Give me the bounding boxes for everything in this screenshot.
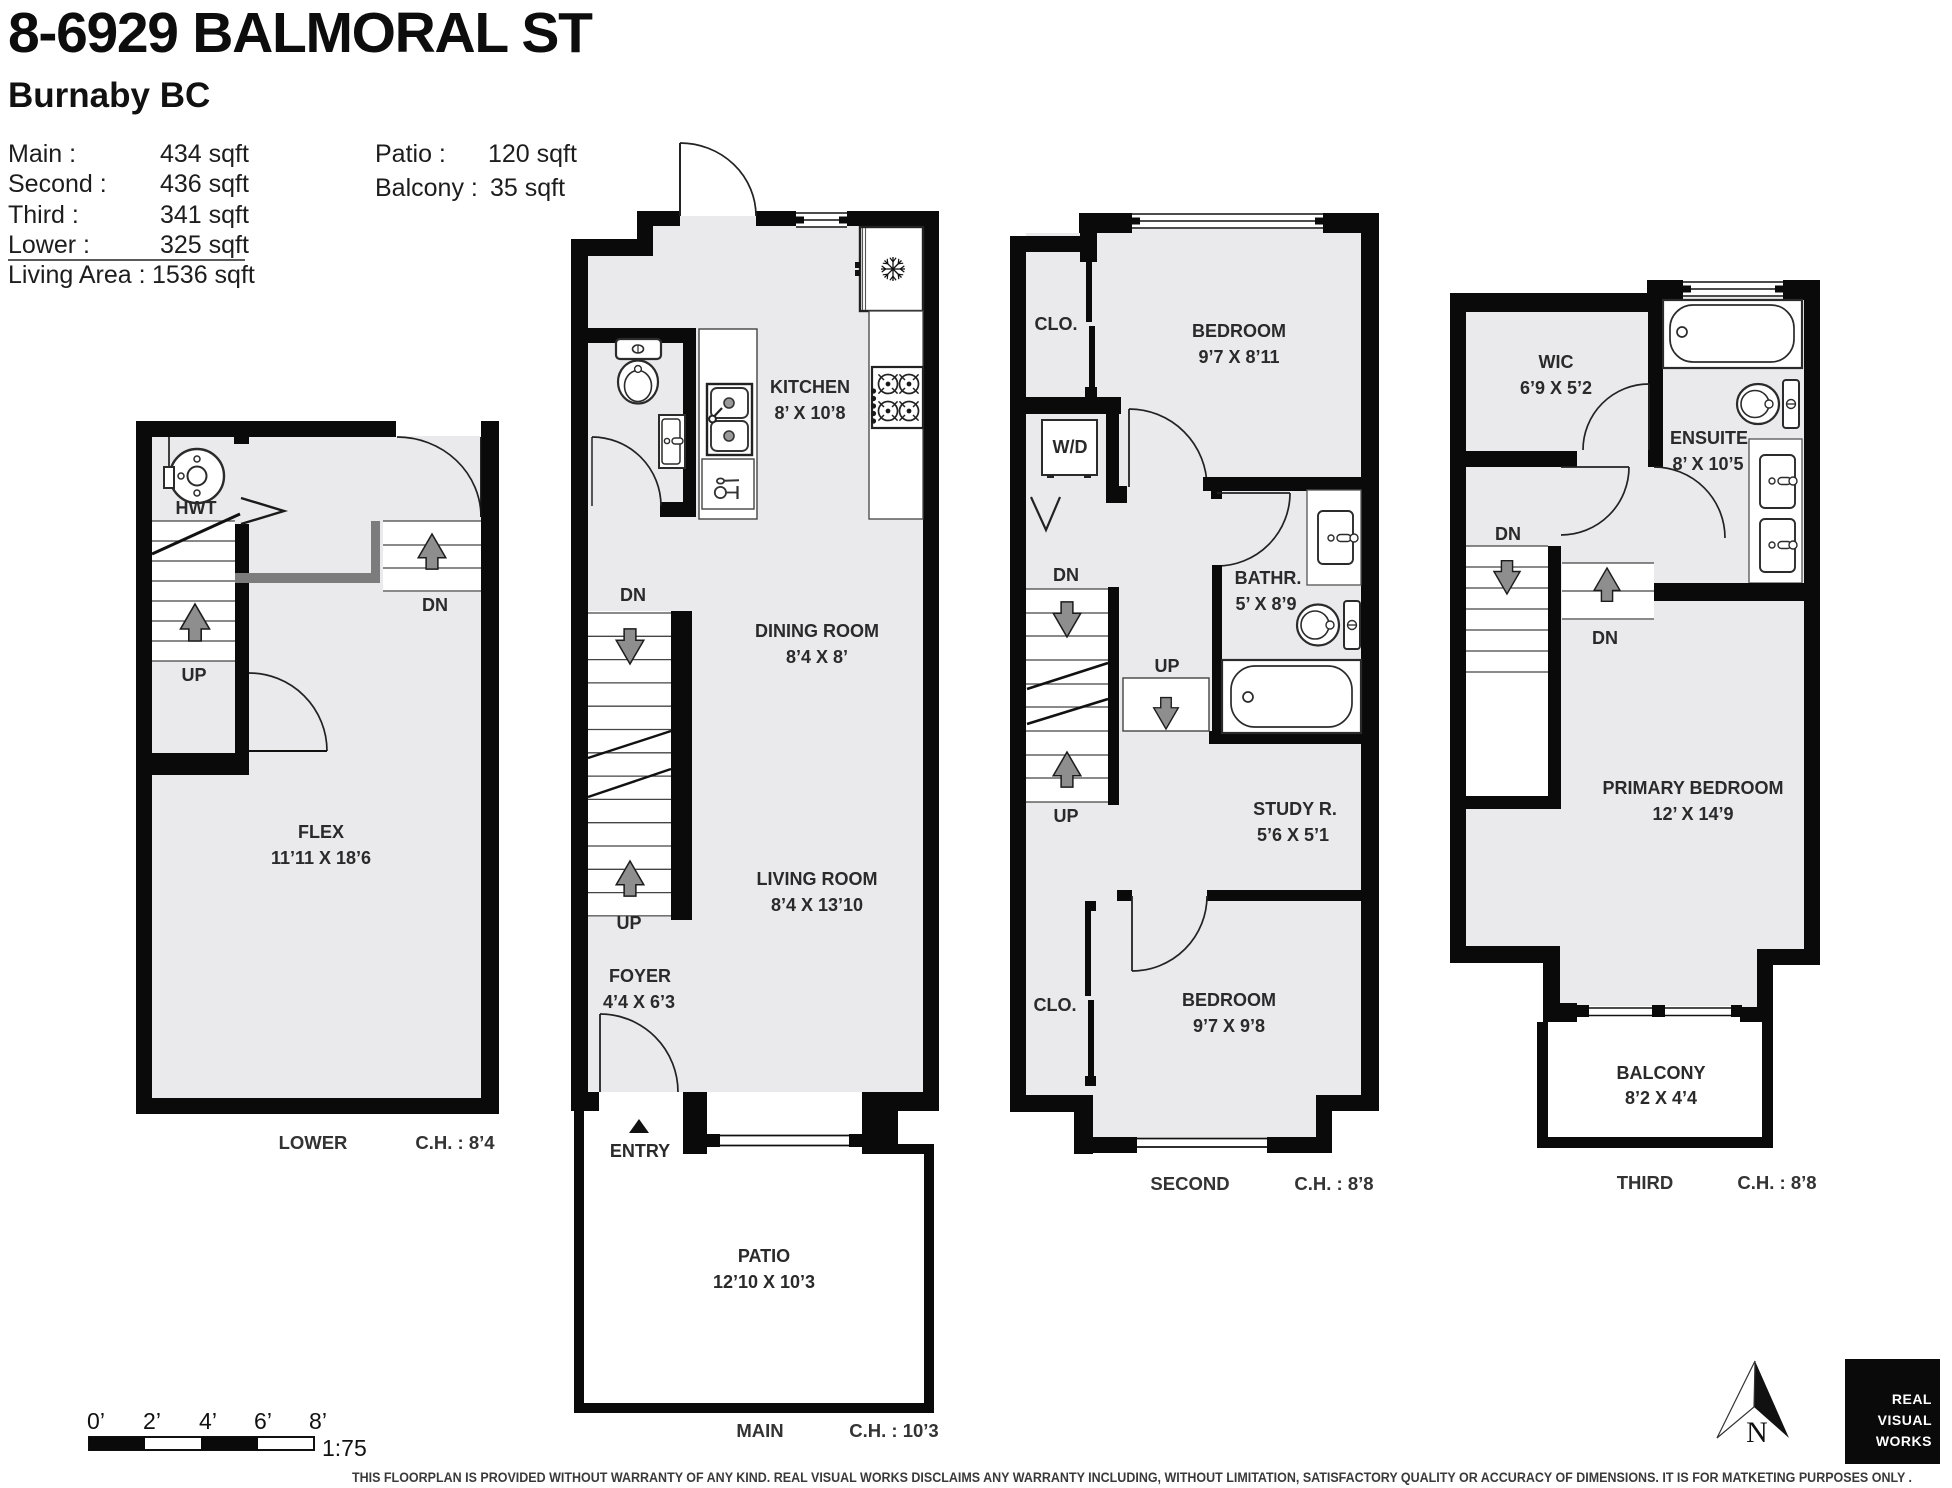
svg-text:UP: UP bbox=[616, 913, 641, 933]
svg-text:C.H. : 8’4: C.H. : 8’4 bbox=[415, 1132, 495, 1153]
svg-text:REAL: REAL bbox=[1892, 1391, 1932, 1407]
svg-text:DN: DN bbox=[422, 595, 448, 615]
svg-text:LIVING ROOM: LIVING ROOM bbox=[757, 869, 878, 889]
svg-text:DN: DN bbox=[1592, 628, 1618, 648]
svg-text:8’ X 10’8: 8’ X 10’8 bbox=[774, 403, 845, 423]
svg-text:8’ X 10’5: 8’ X 10’5 bbox=[1672, 454, 1743, 474]
svg-text:C.H. : 10’3: C.H. : 10’3 bbox=[849, 1420, 938, 1441]
svg-text:436 sqft: 436 sqft bbox=[160, 170, 249, 198]
svg-text:8’4 X 8’: 8’4 X 8’ bbox=[786, 647, 848, 667]
svg-text:8’: 8’ bbox=[309, 1408, 327, 1434]
svg-text:SECOND: SECOND bbox=[1150, 1173, 1229, 1194]
svg-text:LOWER: LOWER bbox=[279, 1132, 348, 1153]
svg-text:Balcony :: Balcony : bbox=[375, 174, 478, 202]
svg-text:12’ X 14’9: 12’ X 14’9 bbox=[1652, 804, 1733, 824]
svg-text:1:75: 1:75 bbox=[322, 1435, 367, 1461]
svg-text:DN: DN bbox=[1495, 524, 1521, 544]
svg-text:5’6 X 5’1: 5’6 X 5’1 bbox=[1257, 825, 1329, 845]
svg-text:Main :: Main : bbox=[8, 140, 76, 168]
svg-text:WORKS: WORKS bbox=[1876, 1433, 1932, 1449]
svg-text:Burnaby BC: Burnaby BC bbox=[8, 76, 210, 115]
svg-text:325 sqft: 325 sqft bbox=[160, 231, 249, 259]
svg-text:1536 sqft: 1536 sqft bbox=[152, 261, 255, 289]
svg-text:4’: 4’ bbox=[199, 1408, 217, 1434]
svg-text:CLO.: CLO. bbox=[1035, 314, 1078, 334]
svg-text:9’7 X 8’11: 9’7 X 8’11 bbox=[1198, 347, 1279, 367]
svg-text:CLO.: CLO. bbox=[1034, 995, 1077, 1015]
svg-text:9’7 X 9’8: 9’7 X 9’8 bbox=[1193, 1016, 1265, 1036]
svg-text:KITCHEN: KITCHEN bbox=[770, 377, 850, 397]
svg-text:UP: UP bbox=[181, 665, 206, 685]
svg-text:HWT: HWT bbox=[176, 498, 217, 518]
svg-text:Lower :: Lower : bbox=[8, 231, 90, 259]
svg-text:12’10 X 10’3: 12’10 X 10’3 bbox=[713, 1272, 815, 1292]
svg-text:FOYER: FOYER bbox=[609, 966, 671, 986]
svg-text:ENTRY: ENTRY bbox=[610, 1141, 670, 1161]
svg-text:5’ X 8’9: 5’ X 8’9 bbox=[1235, 594, 1296, 614]
svg-text:PRIMARY BEDROOM: PRIMARY BEDROOM bbox=[1602, 778, 1783, 798]
svg-text:BEDROOM: BEDROOM bbox=[1192, 321, 1286, 341]
svg-text:C.H. : 8’8: C.H. : 8’8 bbox=[1294, 1173, 1373, 1194]
svg-text:W/D: W/D bbox=[1053, 437, 1088, 457]
svg-text:WIC: WIC bbox=[1539, 352, 1574, 372]
svg-text:Third :: Third : bbox=[8, 201, 79, 229]
svg-text:Living Area :: Living Area : bbox=[8, 261, 146, 289]
svg-text:434 sqft: 434 sqft bbox=[160, 140, 249, 168]
svg-text:DN: DN bbox=[1053, 565, 1079, 585]
svg-text:341 sqft: 341 sqft bbox=[160, 201, 249, 229]
svg-text:UP: UP bbox=[1053, 806, 1078, 826]
svg-text:2’: 2’ bbox=[143, 1408, 161, 1434]
svg-text:MAIN: MAIN bbox=[736, 1420, 783, 1441]
svg-text:4’4 X 6’3: 4’4 X 6’3 bbox=[603, 992, 675, 1012]
svg-text:6’9 X 5’2: 6’9 X 5’2 bbox=[1520, 378, 1592, 398]
svg-text:THIRD: THIRD bbox=[1617, 1172, 1674, 1193]
svg-text:DN: DN bbox=[620, 585, 646, 605]
svg-text:8-6929 BALMORAL ST: 8-6929 BALMORAL ST bbox=[8, 1, 593, 65]
svg-text:C.H. : 8’8: C.H. : 8’8 bbox=[1737, 1172, 1816, 1193]
svg-text:35 sqft: 35 sqft bbox=[490, 174, 565, 202]
svg-text:PATIO: PATIO bbox=[738, 1246, 790, 1266]
svg-text:BEDROOM: BEDROOM bbox=[1182, 990, 1276, 1010]
svg-text:Patio :: Patio : bbox=[375, 140, 446, 168]
svg-text:DINING ROOM: DINING ROOM bbox=[755, 621, 879, 641]
svg-text:8’2 X 4’4: 8’2 X 4’4 bbox=[1625, 1088, 1697, 1108]
svg-text:0’: 0’ bbox=[87, 1408, 105, 1434]
svg-text:THIS FLOORPLAN IS PROVIDED WIT: THIS FLOORPLAN IS PROVIDED WITHOUT WARRA… bbox=[352, 1470, 1912, 1485]
svg-text:11’11 X 18’6: 11’11 X 18’6 bbox=[271, 848, 371, 868]
svg-text:BALCONY: BALCONY bbox=[1617, 1063, 1706, 1083]
svg-text:BATHR.: BATHR. bbox=[1235, 568, 1302, 588]
svg-text:6’: 6’ bbox=[254, 1408, 272, 1434]
svg-text:VISUAL: VISUAL bbox=[1878, 1412, 1932, 1428]
svg-text:120 sqft: 120 sqft bbox=[488, 140, 577, 168]
svg-text:FLEX: FLEX bbox=[298, 822, 344, 842]
svg-text:N: N bbox=[1746, 1416, 1768, 1449]
svg-text:STUDY R.: STUDY R. bbox=[1253, 799, 1337, 819]
svg-text:Second :: Second : bbox=[8, 170, 107, 198]
svg-text:UP: UP bbox=[1154, 656, 1179, 676]
svg-text:ENSUITE: ENSUITE bbox=[1670, 428, 1748, 448]
svg-text:8’4 X 13’10: 8’4 X 13’10 bbox=[771, 895, 863, 915]
